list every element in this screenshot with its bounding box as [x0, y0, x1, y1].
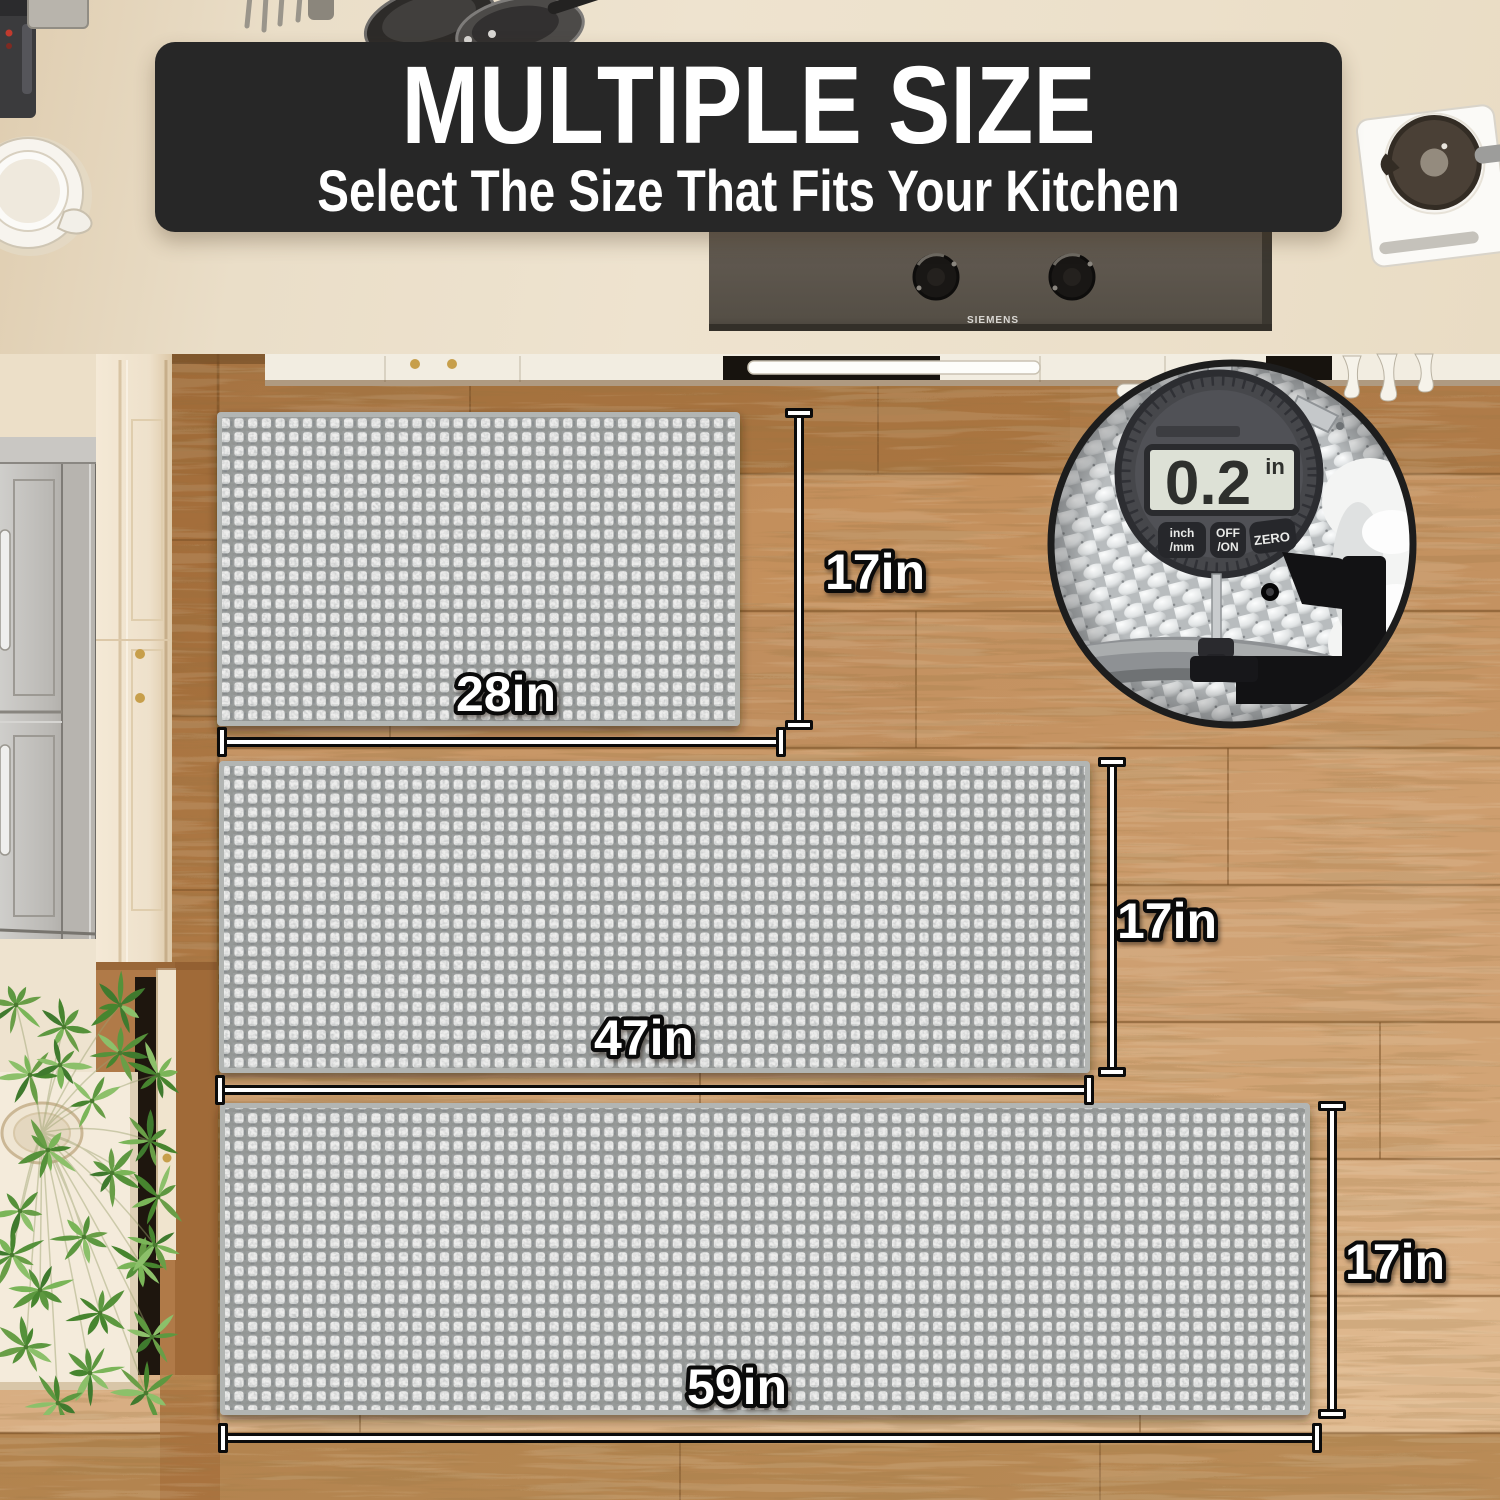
svg-text:in: in — [1265, 454, 1285, 479]
svg-text:17in: 17in — [1345, 1234, 1445, 1290]
svg-text:/mm: /mm — [1170, 540, 1195, 554]
svg-text:inch: inch — [1170, 526, 1195, 540]
svg-text:28in: 28in — [456, 666, 556, 722]
svg-text:47in: 47in — [594, 1010, 694, 1066]
svg-text:17in: 17in — [1117, 893, 1217, 949]
svg-text:/ON: /ON — [1217, 540, 1238, 554]
svg-text:59in: 59in — [687, 1359, 787, 1415]
svg-text:0.2: 0.2 — [1165, 449, 1251, 518]
svg-text:17in: 17in — [825, 544, 925, 600]
svg-text:OFF: OFF — [1216, 526, 1240, 540]
